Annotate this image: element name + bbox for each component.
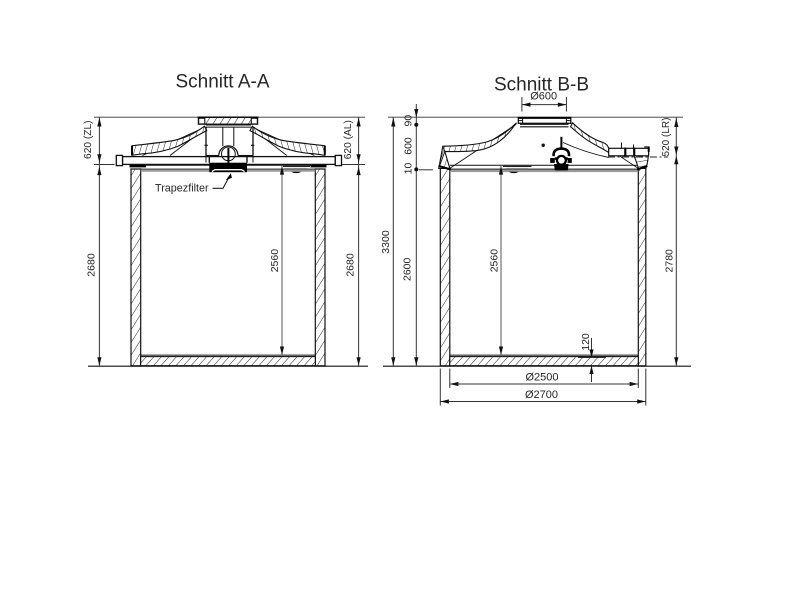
svg-text:10: 10 <box>403 163 415 175</box>
svg-text:3300: 3300 <box>380 230 392 254</box>
svg-text:Ø2500: Ø2500 <box>525 372 558 384</box>
svg-text:600: 600 <box>402 137 414 155</box>
svg-text:520 (LR): 520 (LR) <box>661 118 672 157</box>
svg-text:Schnitt A-A: Schnitt A-A <box>176 72 270 93</box>
svg-text:2560: 2560 <box>269 249 281 273</box>
svg-text:Ø600: Ø600 <box>530 91 557 103</box>
svg-text:90: 90 <box>403 115 415 127</box>
svg-text:620 (AL): 620 (AL) <box>343 120 354 159</box>
svg-text:120: 120 <box>580 333 592 351</box>
svg-text:620 (ZL): 620 (ZL) <box>83 120 94 159</box>
svg-text:2680: 2680 <box>86 253 98 277</box>
svg-text:2780: 2780 <box>663 249 675 273</box>
svg-text:2680: 2680 <box>345 253 357 277</box>
svg-text:2600: 2600 <box>402 257 414 281</box>
svg-text:2560: 2560 <box>489 249 501 273</box>
svg-text:Trapezfilter: Trapezfilter <box>155 182 209 194</box>
svg-text:Ø2700: Ø2700 <box>525 389 558 401</box>
